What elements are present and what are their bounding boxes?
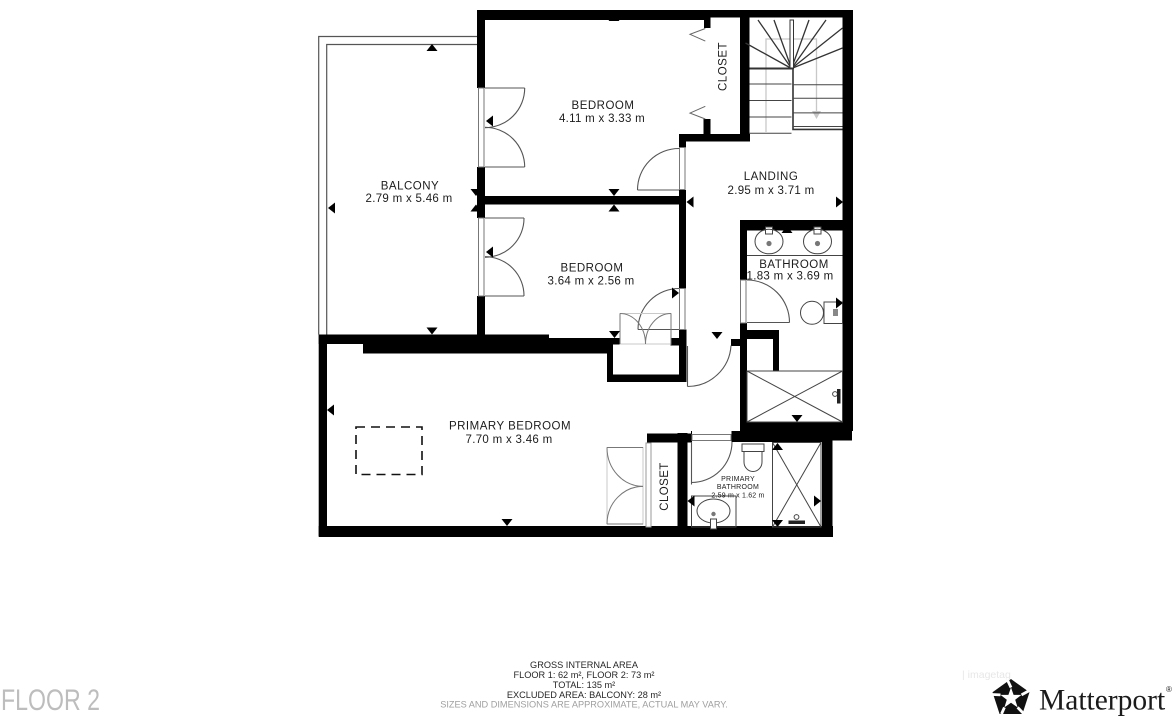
svg-text:PRIMARY BEDROOM: PRIMARY BEDROOM	[449, 421, 571, 433]
svg-text:FLOOR 2: FLOOR 2	[1, 684, 100, 717]
svg-text:CLOSET: CLOSET	[659, 462, 671, 510]
svg-text:PRIMARY: PRIMARY	[721, 476, 755, 483]
svg-text:Matterport: Matterport	[1039, 685, 1166, 717]
svg-text:1.83 m x 3.69 m: 1.83 m x 3.69 m	[747, 271, 834, 283]
svg-text:BATHROOM: BATHROOM	[717, 484, 759, 491]
svg-text:2.95 m x 3.71 m: 2.95 m x 3.71 m	[728, 185, 815, 197]
svg-text:®: ®	[1166, 685, 1172, 694]
svg-text:EXCLUDED AREA: BALCONY: 28 m²: EXCLUDED AREA: BALCONY: 28 m²	[507, 690, 661, 700]
svg-text:LANDING: LANDING	[744, 171, 799, 183]
svg-text:CLOSET: CLOSET	[718, 42, 730, 91]
svg-text:FLOOR 1: 62 m², FLOOR 2: 73 m²: FLOOR 1: 62 m², FLOOR 2: 73 m²	[514, 670, 655, 680]
svg-text:3.64 m x 2.56 m: 3.64 m x 2.56 m	[548, 276, 635, 288]
svg-text:SIZES AND DIMENSIONS ARE APPRO: SIZES AND DIMENSIONS ARE APPROXIMATE, AC…	[440, 700, 728, 710]
svg-text:| imagetag: | imagetag	[962, 669, 1011, 681]
svg-text:7.70 m x 3.46 m: 7.70 m x 3.46 m	[466, 434, 553, 446]
svg-text:BEDROOM: BEDROOM	[561, 263, 624, 275]
svg-text:BALCONY: BALCONY	[381, 181, 439, 193]
svg-text:2.79 m x 5.46 m: 2.79 m x 5.46 m	[366, 193, 453, 205]
svg-text:BEDROOM: BEDROOM	[572, 100, 635, 112]
svg-text:GROSS INTERNAL AREA: GROSS INTERNAL AREA	[530, 660, 639, 670]
svg-text:2.59 m x 1.62 m: 2.59 m x 1.62 m	[711, 493, 764, 500]
svg-text:TOTAL: 135 m²: TOTAL: 135 m²	[553, 680, 615, 690]
svg-text:BATHROOM: BATHROOM	[759, 259, 829, 271]
svg-text:4.11 m x 3.33 m: 4.11 m x 3.33 m	[559, 113, 645, 125]
